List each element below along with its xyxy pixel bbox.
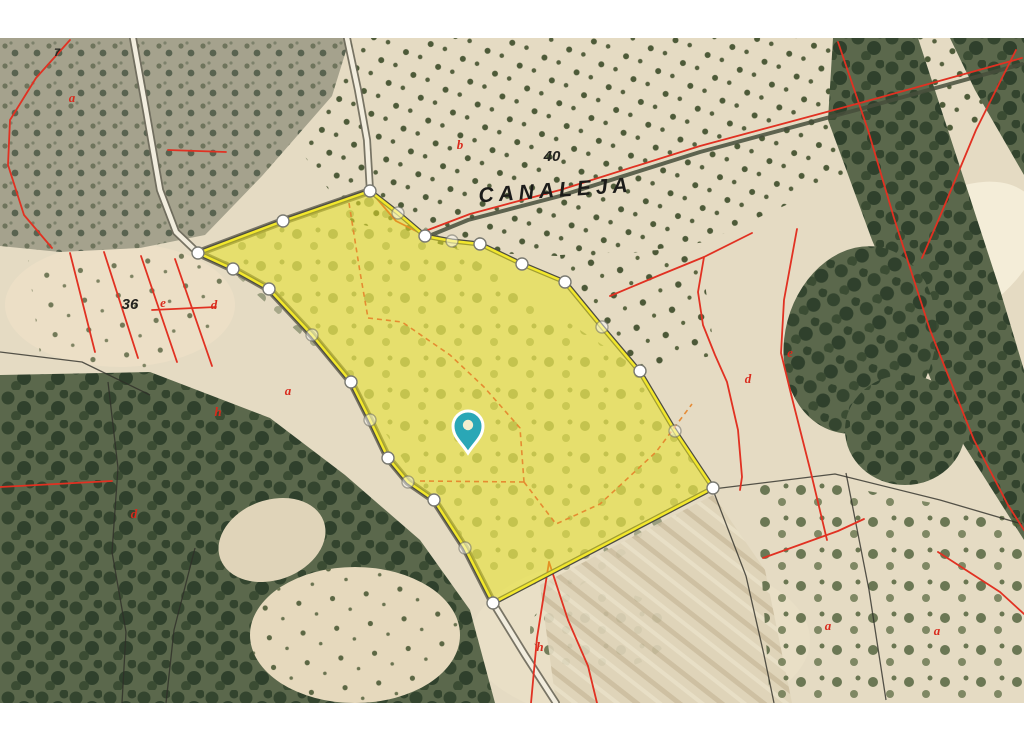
parcel-vertex-marker — [392, 207, 404, 219]
parcel-vertex-marker — [487, 597, 499, 609]
parcel-vertex-marker — [263, 283, 275, 295]
parcel-vertex-marker — [192, 247, 204, 259]
parcel-vertex-marker — [428, 494, 440, 506]
forest-patch-right — [845, 375, 965, 485]
parcel-vertex-marker — [459, 542, 471, 554]
parcel-vertex-marker — [516, 258, 528, 270]
parcel-vertex-marker — [669, 425, 681, 437]
subparcel-letter-label: a — [285, 383, 292, 398]
subparcel-letter-label: e — [787, 345, 793, 360]
parcel-vertex-marker — [559, 276, 571, 288]
subparcel-letter-label: a — [825, 618, 832, 633]
parcel-number-label: 40 — [543, 148, 561, 165]
top-margin — [0, 0, 1024, 38]
parcel-vertex-marker — [402, 476, 414, 488]
subparcel-letter-label: a — [69, 90, 76, 105]
parcel-vertex-marker — [446, 235, 458, 247]
clearing-bottom-trees — [250, 567, 460, 703]
subparcel-letter-label: h — [214, 404, 221, 419]
pin-hole — [463, 420, 473, 430]
parcel-vertex-marker — [634, 365, 646, 377]
parcel-vertex-marker — [345, 376, 357, 388]
subparcel-letter-label: h — [536, 639, 543, 654]
parcel-vertex-marker — [364, 414, 376, 426]
bottom-margin — [0, 703, 1024, 748]
subparcel-letter-label: d — [131, 506, 138, 521]
subparcel-letter-label: d — [211, 297, 218, 312]
cadastral-aerial-map[interactable]: CANALEJA40367abedhadhdeaa — [0, 0, 1024, 748]
subparcel-letter-label: e — [160, 295, 166, 310]
parcel-number-label: 7 — [54, 47, 61, 59]
parcel-vertex-marker — [306, 329, 318, 341]
subparcel-letter-label: a — [934, 623, 941, 638]
map-screenshot: CANALEJA40367abedhadhdeaa — [0, 0, 1024, 748]
subparcel-letter-label: b — [457, 137, 464, 152]
parcel-vertex-marker — [382, 452, 394, 464]
parcel-vertex-marker — [364, 185, 376, 197]
parcel-vertex-marker — [277, 215, 289, 227]
parcel-vertex-marker — [707, 482, 719, 494]
parcel-number-label: 36 — [122, 296, 139, 313]
parcel-vertex-marker — [419, 230, 431, 242]
parcel-vertex-marker — [596, 321, 608, 333]
subparcel-letter-label: d — [745, 371, 752, 386]
parcel-vertex-marker — [227, 263, 239, 275]
parcel-vertex-marker — [474, 238, 486, 250]
